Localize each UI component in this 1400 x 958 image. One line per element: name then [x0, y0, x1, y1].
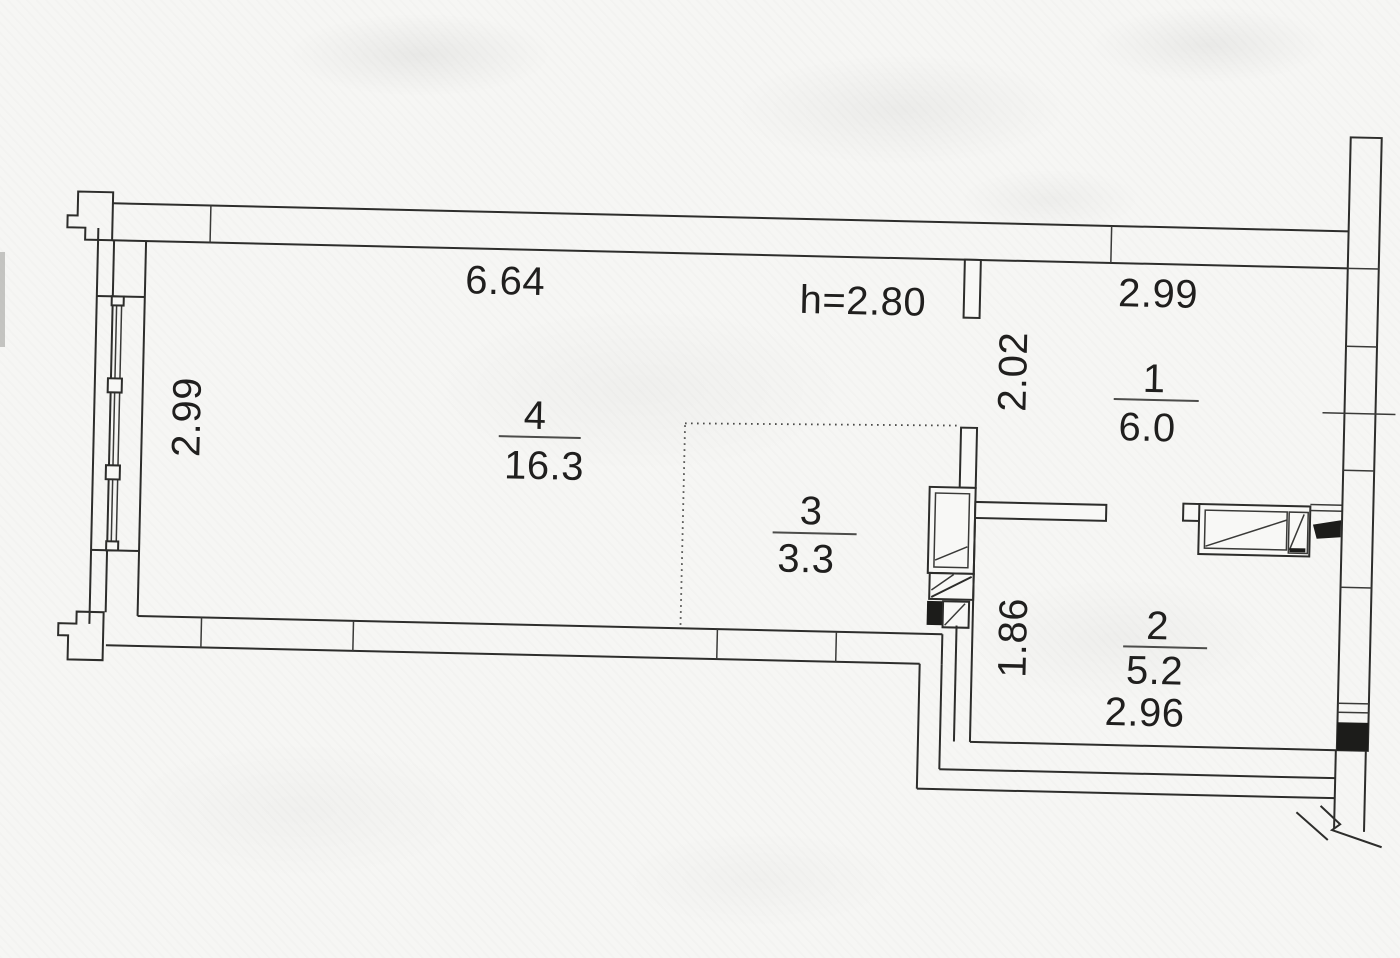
- label-room2-number: 2: [1146, 604, 1170, 649]
- wall-joint-tick: [1111, 226, 1112, 263]
- wall-joint-tick: [1346, 346, 1377, 347]
- window-glazing-line: [116, 306, 121, 542]
- wall-joint-tick: [1343, 470, 1374, 471]
- wall-joint-tick: [717, 629, 718, 659]
- wall-joint-tick: [201, 617, 202, 647]
- label-dim-left-side: 2.99: [164, 377, 210, 458]
- wall-joint-tick: [836, 632, 837, 662]
- exterior-wall-bottom: [106, 615, 942, 664]
- wall-joint-tick: [1341, 587, 1372, 588]
- wall-joint-tick: [1348, 268, 1379, 269]
- label-dim-main-width: 6.64: [465, 258, 546, 304]
- pilaster-top-left: [67, 191, 113, 240]
- fraction-line-room1: [1114, 399, 1199, 401]
- partition-stub-lower: [960, 428, 977, 488]
- label-room2-area: 5.2: [1126, 648, 1184, 693]
- door-unit: [928, 487, 976, 574]
- label-dim-room2-width: 2.96: [1104, 690, 1185, 736]
- vent-shaft-black-square: [1337, 722, 1369, 751]
- shaft-wall-right: [1313, 137, 1400, 832]
- partition-room1-room2: [975, 502, 1106, 521]
- plan-geometry: 6.64 h=2.80 2.99 2.99 2.02 1.86 1 6.0 4 …: [54, 108, 1400, 847]
- label-room4-area: 16.3: [504, 443, 585, 489]
- label-room3-area: 3.3: [777, 536, 835, 581]
- pilaster-bottom-left: [58, 611, 104, 660]
- window-frame-cap: [112, 296, 124, 305]
- bathtub-wall-connector: [1310, 505, 1342, 506]
- break-mark: [1296, 805, 1383, 847]
- sink-unit: [929, 573, 974, 600]
- label-room3-number: 3: [799, 489, 823, 534]
- label-dim-room2-depth: 1.86: [990, 597, 1036, 678]
- exterior-wall-top: [112, 203, 1349, 268]
- dimension-marker-line: [1322, 413, 1395, 415]
- partition-stub-upper: [964, 260, 981, 318]
- floor-plan-drawing: 6.64 h=2.80 2.99 2.99 2.02 1.86 1 6.0 4 …: [0, 0, 1400, 958]
- label-dim-room1-width: 2.99: [1118, 271, 1199, 317]
- fraction-line-room4: [499, 436, 581, 438]
- duct-black-square: [927, 601, 944, 625]
- window-mullion: [108, 378, 122, 392]
- fraction-line-room3: [773, 532, 857, 534]
- wall-end-cap: [942, 634, 943, 664]
- wall-joint-tick: [1338, 712, 1369, 713]
- wall-joint-tick: [353, 621, 354, 651]
- bathtub-tab: [1183, 504, 1200, 521]
- label-room4-number: 4: [523, 394, 547, 439]
- label-room1-area: 6.0: [1118, 405, 1176, 450]
- duct-block: [927, 601, 970, 628]
- label-room1-number: 1: [1142, 357, 1166, 402]
- scanned-floor-plan: 6.64 h=2.80 2.99 2.99 2.02 1.86 1 6.0 4 …: [0, 0, 1400, 958]
- exterior-wall-left: [89, 228, 146, 625]
- bathtub: [1182, 502, 1342, 558]
- label-ceiling-height: h=2.80: [799, 278, 926, 325]
- wall-joint-tick: [1338, 703, 1369, 704]
- window-mullion: [106, 465, 120, 479]
- scan-edge-artifact: [0, 252, 5, 347]
- window-left: [91, 296, 145, 551]
- bathtub-wall-connector: [1310, 511, 1342, 512]
- wall-joint-tick: [210, 206, 211, 243]
- bathtub-wall-wedge: [1313, 520, 1341, 540]
- window-frame-cap: [106, 541, 118, 550]
- label-dim-room1-depth: 2.02: [990, 331, 1036, 412]
